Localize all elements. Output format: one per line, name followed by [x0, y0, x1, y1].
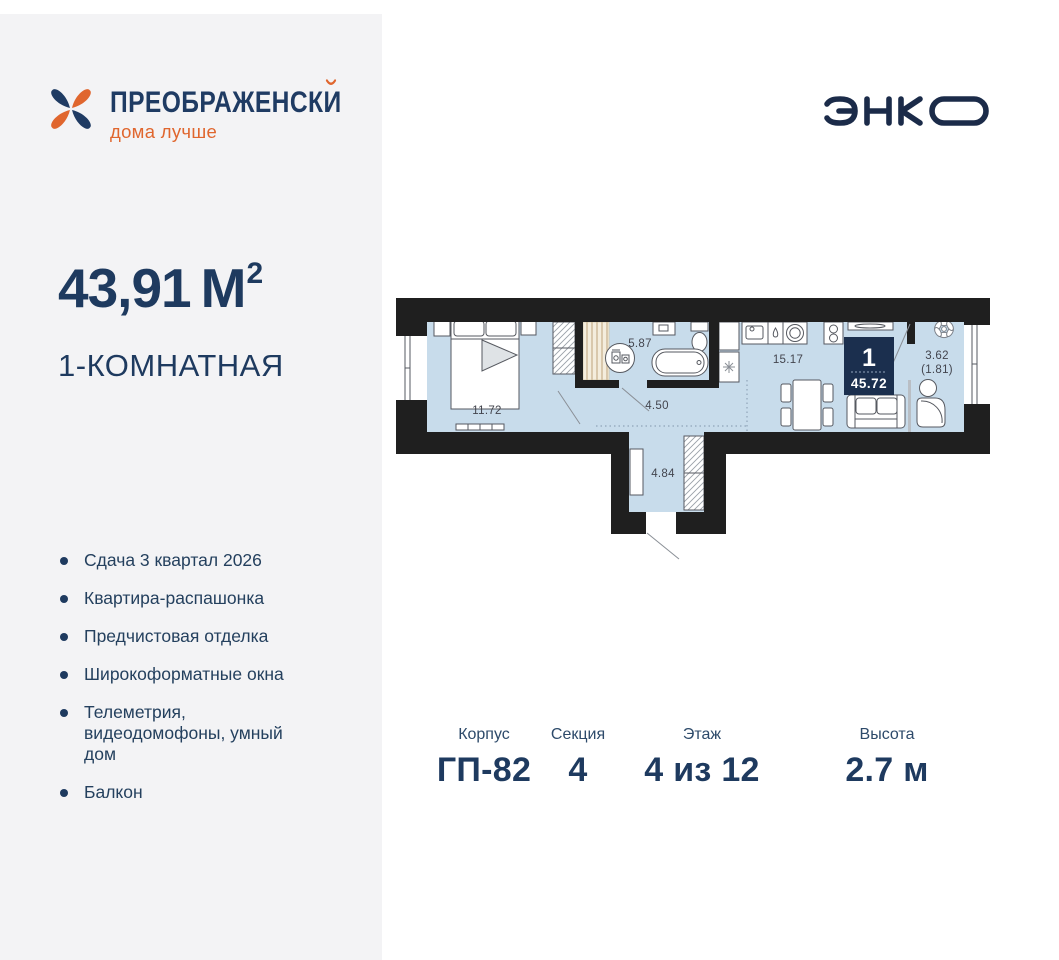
- listing-card: ПРЕОБРАЖЕНСКИ дома лучше 43,91М2 1-КОМНА…: [0, 0, 1059, 960]
- bullet-dot: [60, 633, 68, 641]
- pillow: [486, 321, 516, 336]
- badge-total-area: 45.72: [851, 376, 887, 391]
- chair: [823, 408, 833, 426]
- list-item: Широкоформатные окна: [60, 664, 330, 685]
- brand-tagline: дома лучше: [110, 121, 392, 143]
- chair: [823, 384, 833, 402]
- badge-rooms: 1: [862, 344, 876, 372]
- door-leaf: [630, 449, 643, 495]
- dining-table: [793, 380, 821, 430]
- brand-logo: ПРЕОБРАЖЕНСКИ дома лучше: [46, 84, 392, 143]
- plant-icon: [933, 320, 955, 337]
- bullet-dot: [60, 595, 68, 603]
- breve-accent-icon: [326, 79, 337, 87]
- sidebar: ПРЕОБРАЖЕНСКИ дома лучше 43,91М2 1-КОМНА…: [0, 14, 382, 960]
- chair: [781, 408, 791, 426]
- room-area-label: (1.81): [921, 364, 953, 376]
- room-area-label: 4.84: [651, 468, 675, 480]
- balcony-sill: [908, 380, 911, 432]
- chair: [781, 384, 791, 402]
- features-list: Сдача 3 квартал 2026 Квартира-распашонка…: [60, 550, 330, 820]
- bathtub: [652, 349, 708, 376]
- spec-height: Высота 2.7 м: [807, 726, 967, 790]
- brand-pinwheel-icon: [46, 84, 96, 134]
- rooms-title: 1-КОМНАТНАЯ: [58, 348, 284, 384]
- toilet-tank: [691, 322, 708, 331]
- list-item: Квартира-распашонка: [60, 588, 330, 609]
- spec-floor: Этаж 4 из 12: [622, 726, 782, 790]
- bullet-dot: [60, 557, 68, 565]
- apartment-area: 43,91М2: [58, 256, 261, 320]
- shower-zone: [583, 322, 609, 380]
- room-area-label: 4.50: [645, 400, 669, 412]
- entrance-door-swing: [647, 533, 679, 559]
- room-area-label: 5.87: [628, 338, 652, 350]
- bedroom-window: [396, 336, 427, 400]
- pillow: [454, 321, 484, 336]
- spec-section: Секция 4: [518, 726, 638, 790]
- nightstand: [521, 320, 536, 335]
- bullet-dot: [60, 671, 68, 679]
- list-item: Сдача 3 квартал 2026: [60, 550, 330, 571]
- floor-plan: 11.72 5.87 4.50 4.84 15.17 3.62 (1.81) 1…: [396, 292, 990, 562]
- list-item: Предчистовая отделка: [60, 626, 330, 647]
- room-area-label: 11.72: [472, 405, 501, 417]
- sink: [653, 322, 675, 335]
- brand-name: ПРЕОБРАЖЕНСКИ: [110, 86, 342, 120]
- room-area-label: 3.62: [925, 350, 949, 362]
- room-area-label: 15.17: [773, 354, 803, 366]
- area-value: 43,91: [58, 257, 191, 319]
- area-unit: М: [201, 257, 246, 319]
- balcony-table: [920, 380, 937, 397]
- bullet-dot: [60, 709, 68, 717]
- counter-unit: [768, 322, 783, 344]
- list-item: Балкон: [60, 782, 330, 803]
- bullet-dot: [60, 789, 68, 797]
- nightstand: [434, 320, 450, 336]
- apartment-badge: 1 45.72: [844, 337, 894, 395]
- list-item: Телеметрия, видеодомофоны, умный дом: [60, 702, 330, 765]
- enko-logo: [822, 94, 994, 128]
- area-superscript: 2: [246, 257, 262, 290]
- cabinet: [719, 322, 739, 350]
